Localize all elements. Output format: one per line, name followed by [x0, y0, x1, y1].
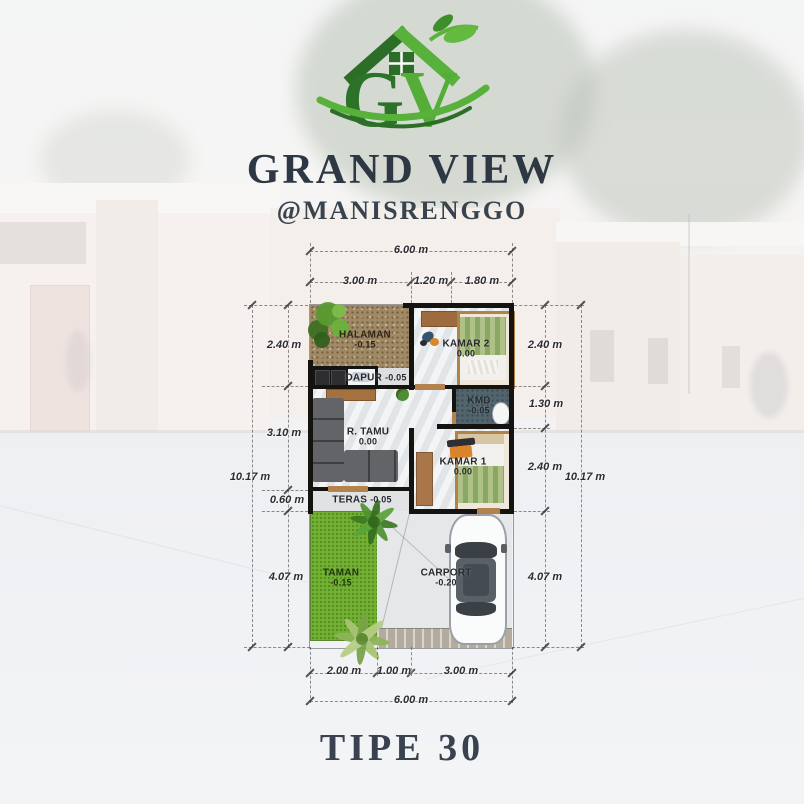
- room-label-rtamu: R. TAMU0.00: [347, 427, 389, 448]
- car-rear-glass: [456, 602, 496, 616]
- kamar2-bird-decor: [420, 328, 442, 348]
- room-label-kamar1: KAMAR 10.00: [440, 457, 487, 478]
- room-label-kamar2: KAMAR 20.00: [443, 339, 490, 360]
- page-subtitle: @MANISRENGGO: [0, 196, 804, 226]
- dim-ext-line: [514, 305, 584, 306]
- wall-right: [509, 303, 514, 514]
- car-mirror-left: [445, 544, 451, 553]
- stove-burner: [315, 370, 330, 386]
- logo-letter-v: V: [400, 56, 458, 144]
- dim-label-left-total: 10.17 m: [230, 471, 270, 483]
- room-label-halaman: HALAMAN-0.15: [339, 330, 391, 351]
- wall-rtamu-bottom-b: [368, 487, 413, 491]
- dim-label-bottom-seg1: 2.00 m: [327, 665, 361, 677]
- car-windshield: [455, 542, 497, 559]
- door-kmd: [452, 412, 456, 424]
- wall-kamar1-left: [409, 428, 414, 514]
- dim-label-right-total: 10.17 m: [565, 471, 605, 483]
- dim-label-top-seg3: 1.80 m: [465, 275, 499, 287]
- door-kamar2: [415, 384, 445, 390]
- grandview-logo: G V: [302, 12, 502, 144]
- wall-bottom-b: [500, 509, 514, 514]
- dim-label-top-seg1: 3.00 m: [343, 275, 377, 287]
- wall-kamar1-top: [437, 424, 514, 429]
- car-mirror-right: [501, 544, 507, 553]
- room-label-taman: TAMAN-0.15: [323, 568, 359, 589]
- wall-under-dapur: [308, 385, 415, 389]
- dim-label-bottom-total: 6.00 m: [394, 694, 428, 706]
- dim-ext-line: [512, 647, 584, 648]
- room-label-teras: TERAS-0.05: [332, 495, 391, 506]
- type-label: TIPE 30: [0, 726, 804, 770]
- rtamu-plant: [396, 388, 409, 401]
- dim-line: [288, 305, 289, 647]
- wall-rtamu-bottom-a: [308, 487, 328, 491]
- dim-label-right-seg2: 1.30 m: [529, 398, 563, 410]
- rtamu-sofa-vertical: [312, 398, 344, 482]
- dim-label-right-seg4: 4.07 m: [528, 571, 562, 583]
- stove-burner: [331, 370, 346, 386]
- decor-part: [430, 338, 439, 346]
- dim-ext-line: [411, 272, 412, 303]
- dim-label-left-seg2: 3.10 m: [267, 427, 301, 439]
- dim-label-right-seg3: 2.40 m: [528, 461, 562, 473]
- dim-label-bottom-seg2: 1.00 m: [377, 665, 411, 677]
- kmd-toilet: [492, 402, 510, 425]
- door-teras: [328, 486, 368, 492]
- dim-label-left-seg4: 4.07 m: [269, 571, 303, 583]
- wall-halaman-kamar2-divider: [409, 303, 414, 390]
- decor-part: [420, 340, 427, 346]
- dim-line: [545, 305, 546, 647]
- wall-kmd-left: [452, 388, 456, 412]
- dim-ext-line: [451, 272, 452, 303]
- room-label-dapur: DAPUR-0.05: [345, 373, 406, 384]
- kamar2-dresser: [421, 311, 460, 327]
- dim-ext-line: [244, 305, 308, 306]
- dim-ext-line: [512, 647, 513, 703]
- palm-plant-bottom: [330, 610, 394, 668]
- poster: G V GRAND VIEW @MANISRENGGO: [0, 0, 804, 804]
- kamar1-wardrobe: [416, 452, 433, 506]
- dim-label-left-seg1: 2.40 m: [267, 339, 301, 351]
- page-title: GRAND VIEW: [0, 146, 804, 194]
- bed-fold: [468, 360, 498, 374]
- door-kamar1: [477, 508, 500, 514]
- dim-ext-line: [310, 647, 311, 703]
- room-label-carport: CARPORT-0.20: [421, 568, 472, 589]
- dim-label-bottom-seg3: 3.00 m: [444, 665, 478, 677]
- dim-label-top-seg2: 1.20 m: [414, 275, 448, 287]
- rtamu-sofa-horizontal: [344, 450, 398, 482]
- wall-top: [403, 303, 514, 308]
- logo-letter-g: G: [342, 56, 404, 144]
- room-label-kmd: KMD-0.05: [467, 396, 490, 417]
- dim-label-top-total: 6.00 m: [394, 244, 428, 256]
- wall-bottom-a: [409, 509, 477, 514]
- dim-ext-line: [244, 647, 310, 648]
- dim-label-right-seg1: 2.40 m: [528, 339, 562, 351]
- dim-label-left-seg3: 0.60 m: [270, 494, 304, 506]
